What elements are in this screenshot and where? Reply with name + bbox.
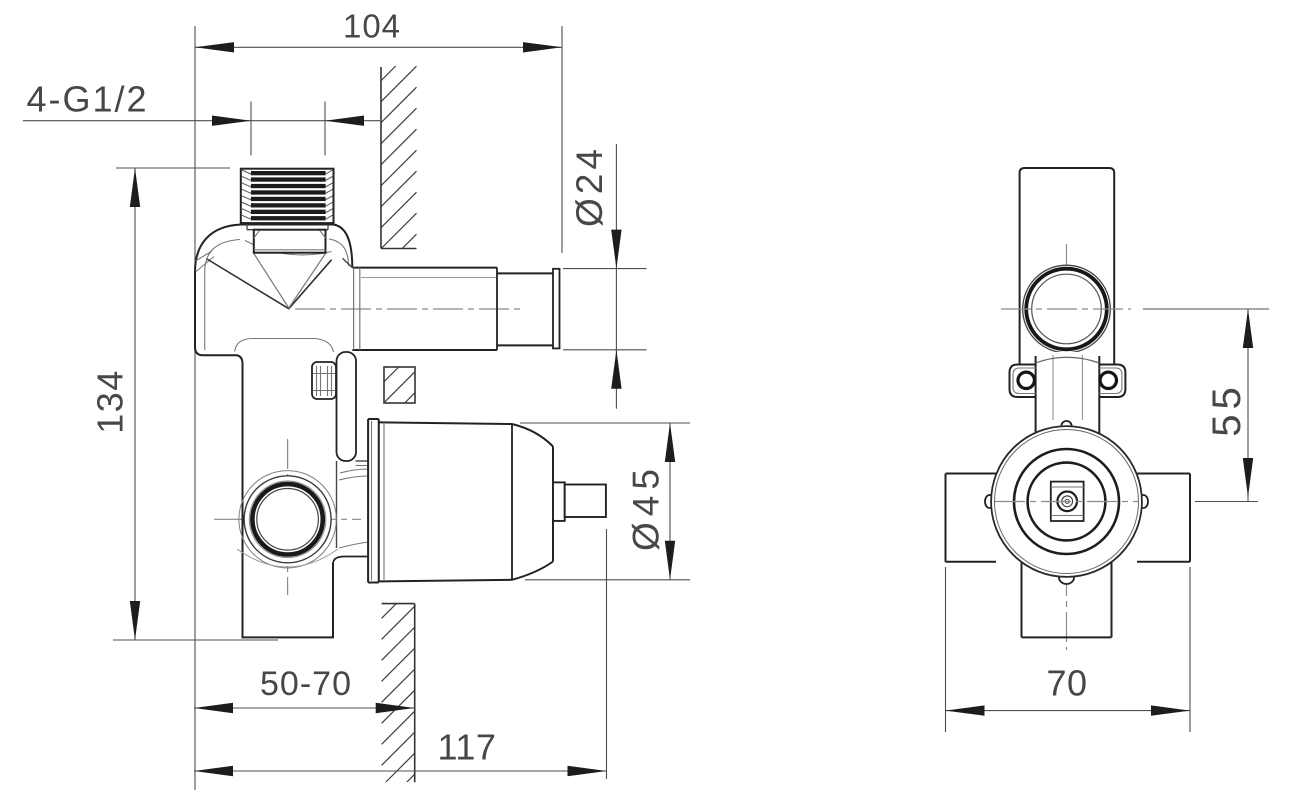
- svg-text:Ø45: Ø45: [625, 463, 666, 551]
- svg-text:4-G1/2: 4-G1/2: [26, 79, 148, 120]
- svg-text:70: 70: [1046, 663, 1087, 704]
- svg-text:50-70: 50-70: [260, 665, 352, 703]
- svg-text:104: 104: [343, 8, 401, 45]
- svg-text:55: 55: [1205, 382, 1249, 437]
- svg-text:134: 134: [90, 369, 131, 434]
- svg-text:Ø24: Ø24: [569, 145, 610, 227]
- svg-text:117: 117: [438, 727, 497, 768]
